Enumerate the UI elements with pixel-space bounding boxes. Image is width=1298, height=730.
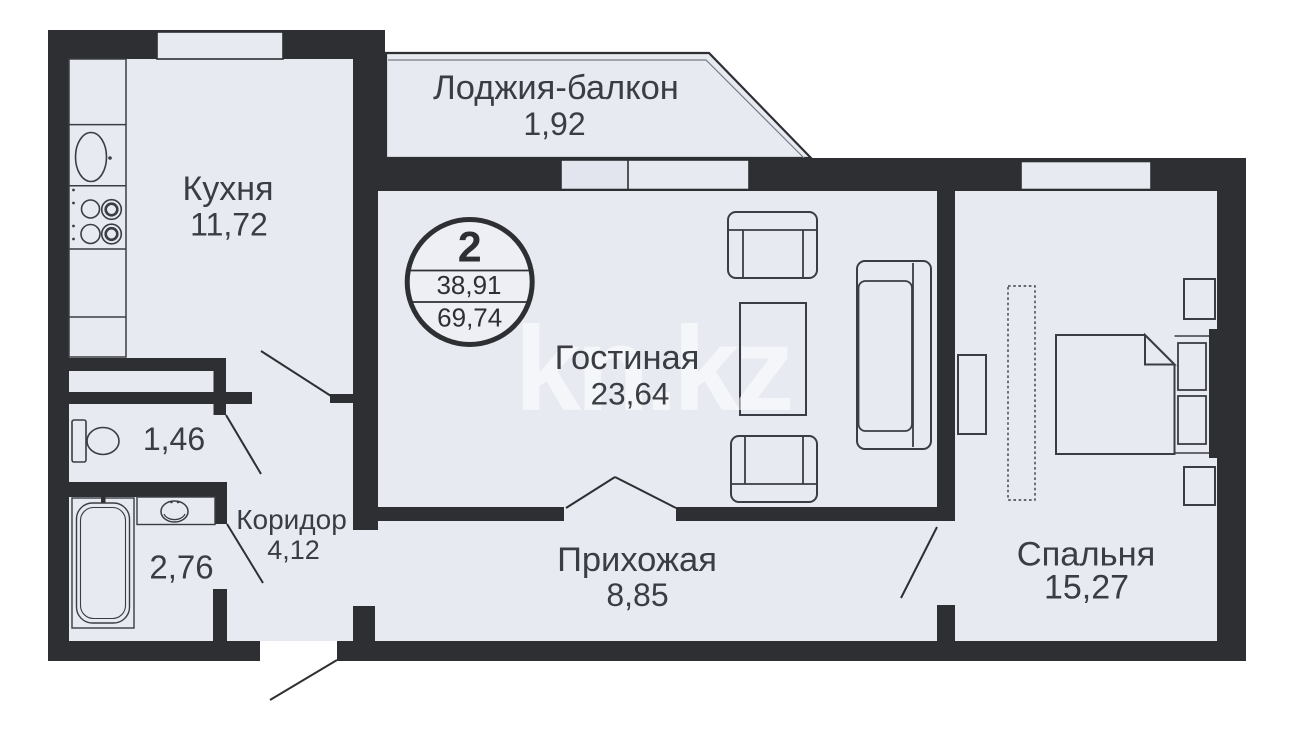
svg-text:8,85: 8,85 bbox=[606, 577, 668, 613]
svg-text:23,64: 23,64 bbox=[591, 376, 670, 412]
svg-text:1,92: 1,92 bbox=[523, 106, 585, 142]
svg-text:69,74: 69,74 bbox=[437, 303, 502, 333]
svg-text:2: 2 bbox=[458, 224, 482, 272]
svg-text:Коридор: Коридор bbox=[236, 504, 347, 535]
svg-text:Гостиная: Гостиная bbox=[555, 339, 700, 377]
svg-text:11,72: 11,72 bbox=[190, 207, 268, 243]
svg-text:Кухня: Кухня bbox=[183, 170, 274, 208]
svg-text:4,12: 4,12 bbox=[267, 535, 320, 565]
svg-text:Лоджия-балкон: Лоджия-балкон bbox=[433, 69, 679, 107]
svg-text:Прихожая: Прихожая bbox=[557, 541, 717, 579]
svg-text:38,91: 38,91 bbox=[436, 270, 501, 300]
svg-text:2,76: 2,76 bbox=[149, 549, 213, 586]
svg-text:1,46: 1,46 bbox=[143, 421, 205, 457]
svg-text:15,27: 15,27 bbox=[1044, 569, 1129, 607]
